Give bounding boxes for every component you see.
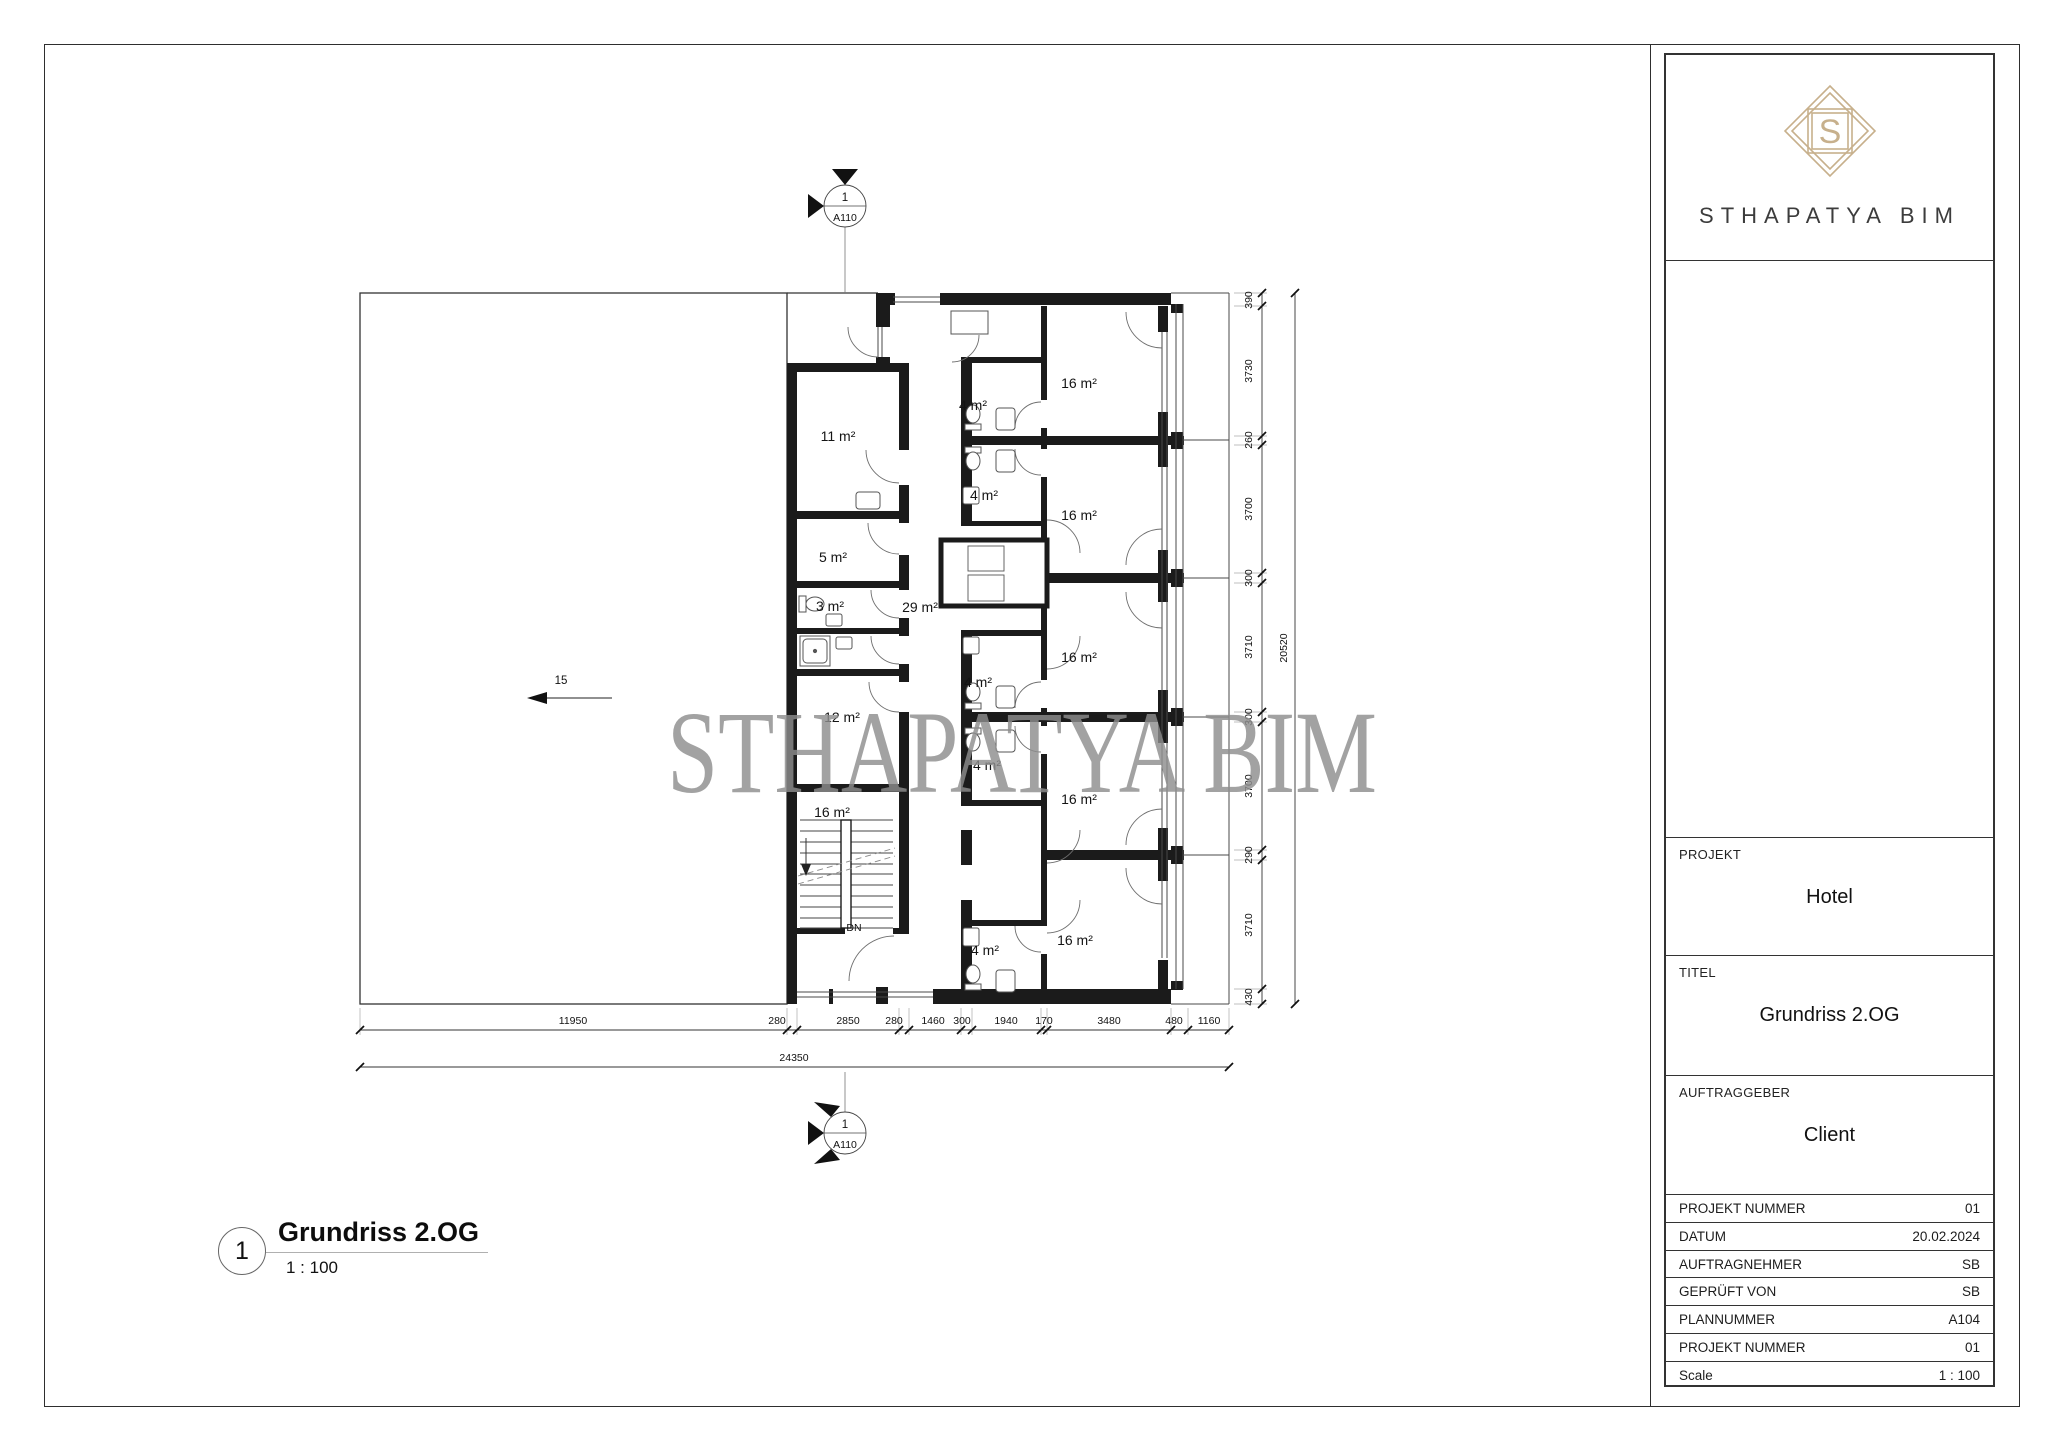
windows-glazing — [797, 293, 1229, 1004]
dim-label: 280 — [768, 1015, 786, 1027]
view-title-text: Grundriss 2.OG — [278, 1217, 479, 1248]
dim-label: 2850 — [836, 1015, 860, 1027]
dimensions-right: 390 3730 260 3700 300 3710 300 3700 290 … — [1234, 289, 1299, 1008]
dim-label: 300 — [953, 1015, 971, 1027]
row-label: GEPRÜFT VON — [1679, 1284, 1776, 1299]
row-label: PLANNUMMER — [1679, 1312, 1775, 1327]
table-row: AUFTRAGNEHMER SB — [1666, 1251, 1993, 1279]
row-label: PROJEKT NUMMER — [1679, 1201, 1806, 1216]
table-row: PROJEKT NUMMER 01 — [1666, 1195, 1993, 1223]
room-label: 16 m² — [1061, 507, 1097, 523]
row-value: SB — [1962, 1284, 1980, 1299]
room-label: 4 m² — [959, 397, 987, 413]
dim-label: 170 — [1035, 1015, 1053, 1027]
row-label: PROJEKT NUMMER — [1679, 1340, 1806, 1355]
view-reference-label: 15 — [555, 675, 568, 687]
section-number: 1 — [842, 1119, 848, 1131]
section-sheet: A110 — [833, 212, 857, 224]
dim-label: 290 — [1243, 846, 1255, 864]
titel-value: Grundriss 2.OG — [1666, 1004, 1993, 1027]
staircase: DN — [798, 820, 895, 934]
dim-label: 3480 — [1097, 1015, 1121, 1027]
view-title: 1 Grundriss 2.OG 1 : 100 — [218, 1225, 638, 1295]
row-label: AUFTRAGNEHMER — [1679, 1257, 1802, 1272]
drawing-sheet: 15 — [0, 0, 2048, 1441]
room-label: 29 m² — [902, 599, 938, 615]
dim-label: 3730 — [1243, 359, 1255, 383]
section-marker-bottom: 1 A110 — [808, 1072, 866, 1164]
row-label: DATUM — [1679, 1229, 1726, 1244]
view-title-underline — [266, 1252, 488, 1253]
section-number: 1 — [842, 192, 848, 204]
room-label: 16 m² — [1057, 932, 1093, 948]
auftraggeber-label: AUFTRAGGEBER — [1679, 1085, 1790, 1100]
shaft-block — [941, 540, 1047, 606]
titleblock: S STHAPATYA BIM PROJEKT Hotel TITEL Grun… — [1664, 53, 1995, 1387]
table-row: PROJEKT NUMMER 01 — [1666, 1334, 1993, 1362]
table-row: GEPRÜFT VON SB — [1666, 1278, 1993, 1306]
dim-label: 300 — [1243, 569, 1255, 587]
titleblock-titel-section: TITEL Grundriss 2.OG — [1666, 955, 1993, 1075]
stair-direction-label: DN — [846, 922, 861, 934]
svg-text:S: S — [1818, 113, 1841, 151]
dim-label: 390 — [1243, 291, 1255, 309]
dim-total-label: 20520 — [1278, 633, 1290, 662]
dim-label: 3710 — [1243, 913, 1255, 937]
table-row: PLANNUMMER A104 — [1666, 1306, 1993, 1334]
dim-label: 3710 — [1243, 635, 1255, 659]
table-row: Scale 1 : 100 — [1666, 1362, 1993, 1389]
view-reference-arrow: 15 — [527, 675, 612, 704]
row-label: Scale — [1679, 1368, 1713, 1383]
view-scale-text: 1 : 100 — [286, 1258, 338, 1278]
dim-label: 430 — [1243, 988, 1255, 1006]
titleblock-logo-section: S STHAPATYA BIM — [1666, 55, 1993, 261]
room-label: 11 m² — [821, 428, 856, 444]
room-label: 5 m² — [819, 549, 847, 565]
row-value: A104 — [1948, 1312, 1980, 1327]
row-value: 01 — [1965, 1340, 1980, 1355]
section-marker-top: 1 A110 — [808, 169, 866, 293]
dim-label: 11950 — [559, 1015, 588, 1027]
room-label: 3 m² — [816, 598, 844, 614]
dim-label: 260 — [1243, 431, 1255, 449]
company-logo-icon: S — [1778, 79, 1882, 183]
projekt-value: Hotel — [1666, 886, 1993, 909]
dim-label: 480 — [1165, 1015, 1183, 1027]
room-label: 4 m² — [970, 487, 998, 503]
dim-label: 3700 — [1243, 497, 1255, 521]
titleblock-table: PROJEKT NUMMER 01 DATUM 20.02.2024 AUFTR… — [1666, 1194, 1993, 1390]
titel-label: TITEL — [1679, 965, 1716, 980]
row-value: 20.02.2024 — [1912, 1229, 1980, 1244]
row-value: 1 : 100 — [1939, 1368, 1980, 1383]
company-name: STHAPATYA BIM — [1666, 203, 1993, 229]
dimensions-bottom: 11950 280 2850 280 1460 300 1940 170 348… — [356, 1008, 1233, 1071]
titleblock-projekt-section: PROJEKT Hotel — [1666, 837, 1993, 955]
room-label: 16 m² — [1061, 649, 1097, 665]
dim-label: 1460 — [921, 1015, 945, 1027]
room-label: 4 m² — [971, 942, 999, 958]
projekt-label: PROJEKT — [1679, 847, 1741, 862]
titleblock-auftraggeber-section: AUFTRAGGEBER Client — [1666, 1075, 1993, 1194]
table-row: DATUM 20.02.2024 — [1666, 1223, 1993, 1251]
section-sheet: A110 — [833, 1139, 857, 1151]
auftraggeber-value: Client — [1666, 1124, 1993, 1147]
dim-total-label: 24350 — [779, 1052, 808, 1064]
dim-label: 280 — [885, 1015, 903, 1027]
dim-label: 1160 — [1198, 1015, 1221, 1027]
room-labels: 11 m² 5 m² 3 m² 29 m² 12 m² 16 m² 4 m² 4… — [814, 375, 1097, 958]
view-number-bubble: 1 — [218, 1227, 266, 1275]
room-label: 16 m² — [1061, 375, 1097, 391]
row-value: SB — [1962, 1257, 1980, 1272]
dim-label: 1940 — [994, 1015, 1018, 1027]
row-value: 01 — [1965, 1201, 1980, 1216]
watermark-text: STHAPATYA BIM — [667, 687, 1377, 818]
